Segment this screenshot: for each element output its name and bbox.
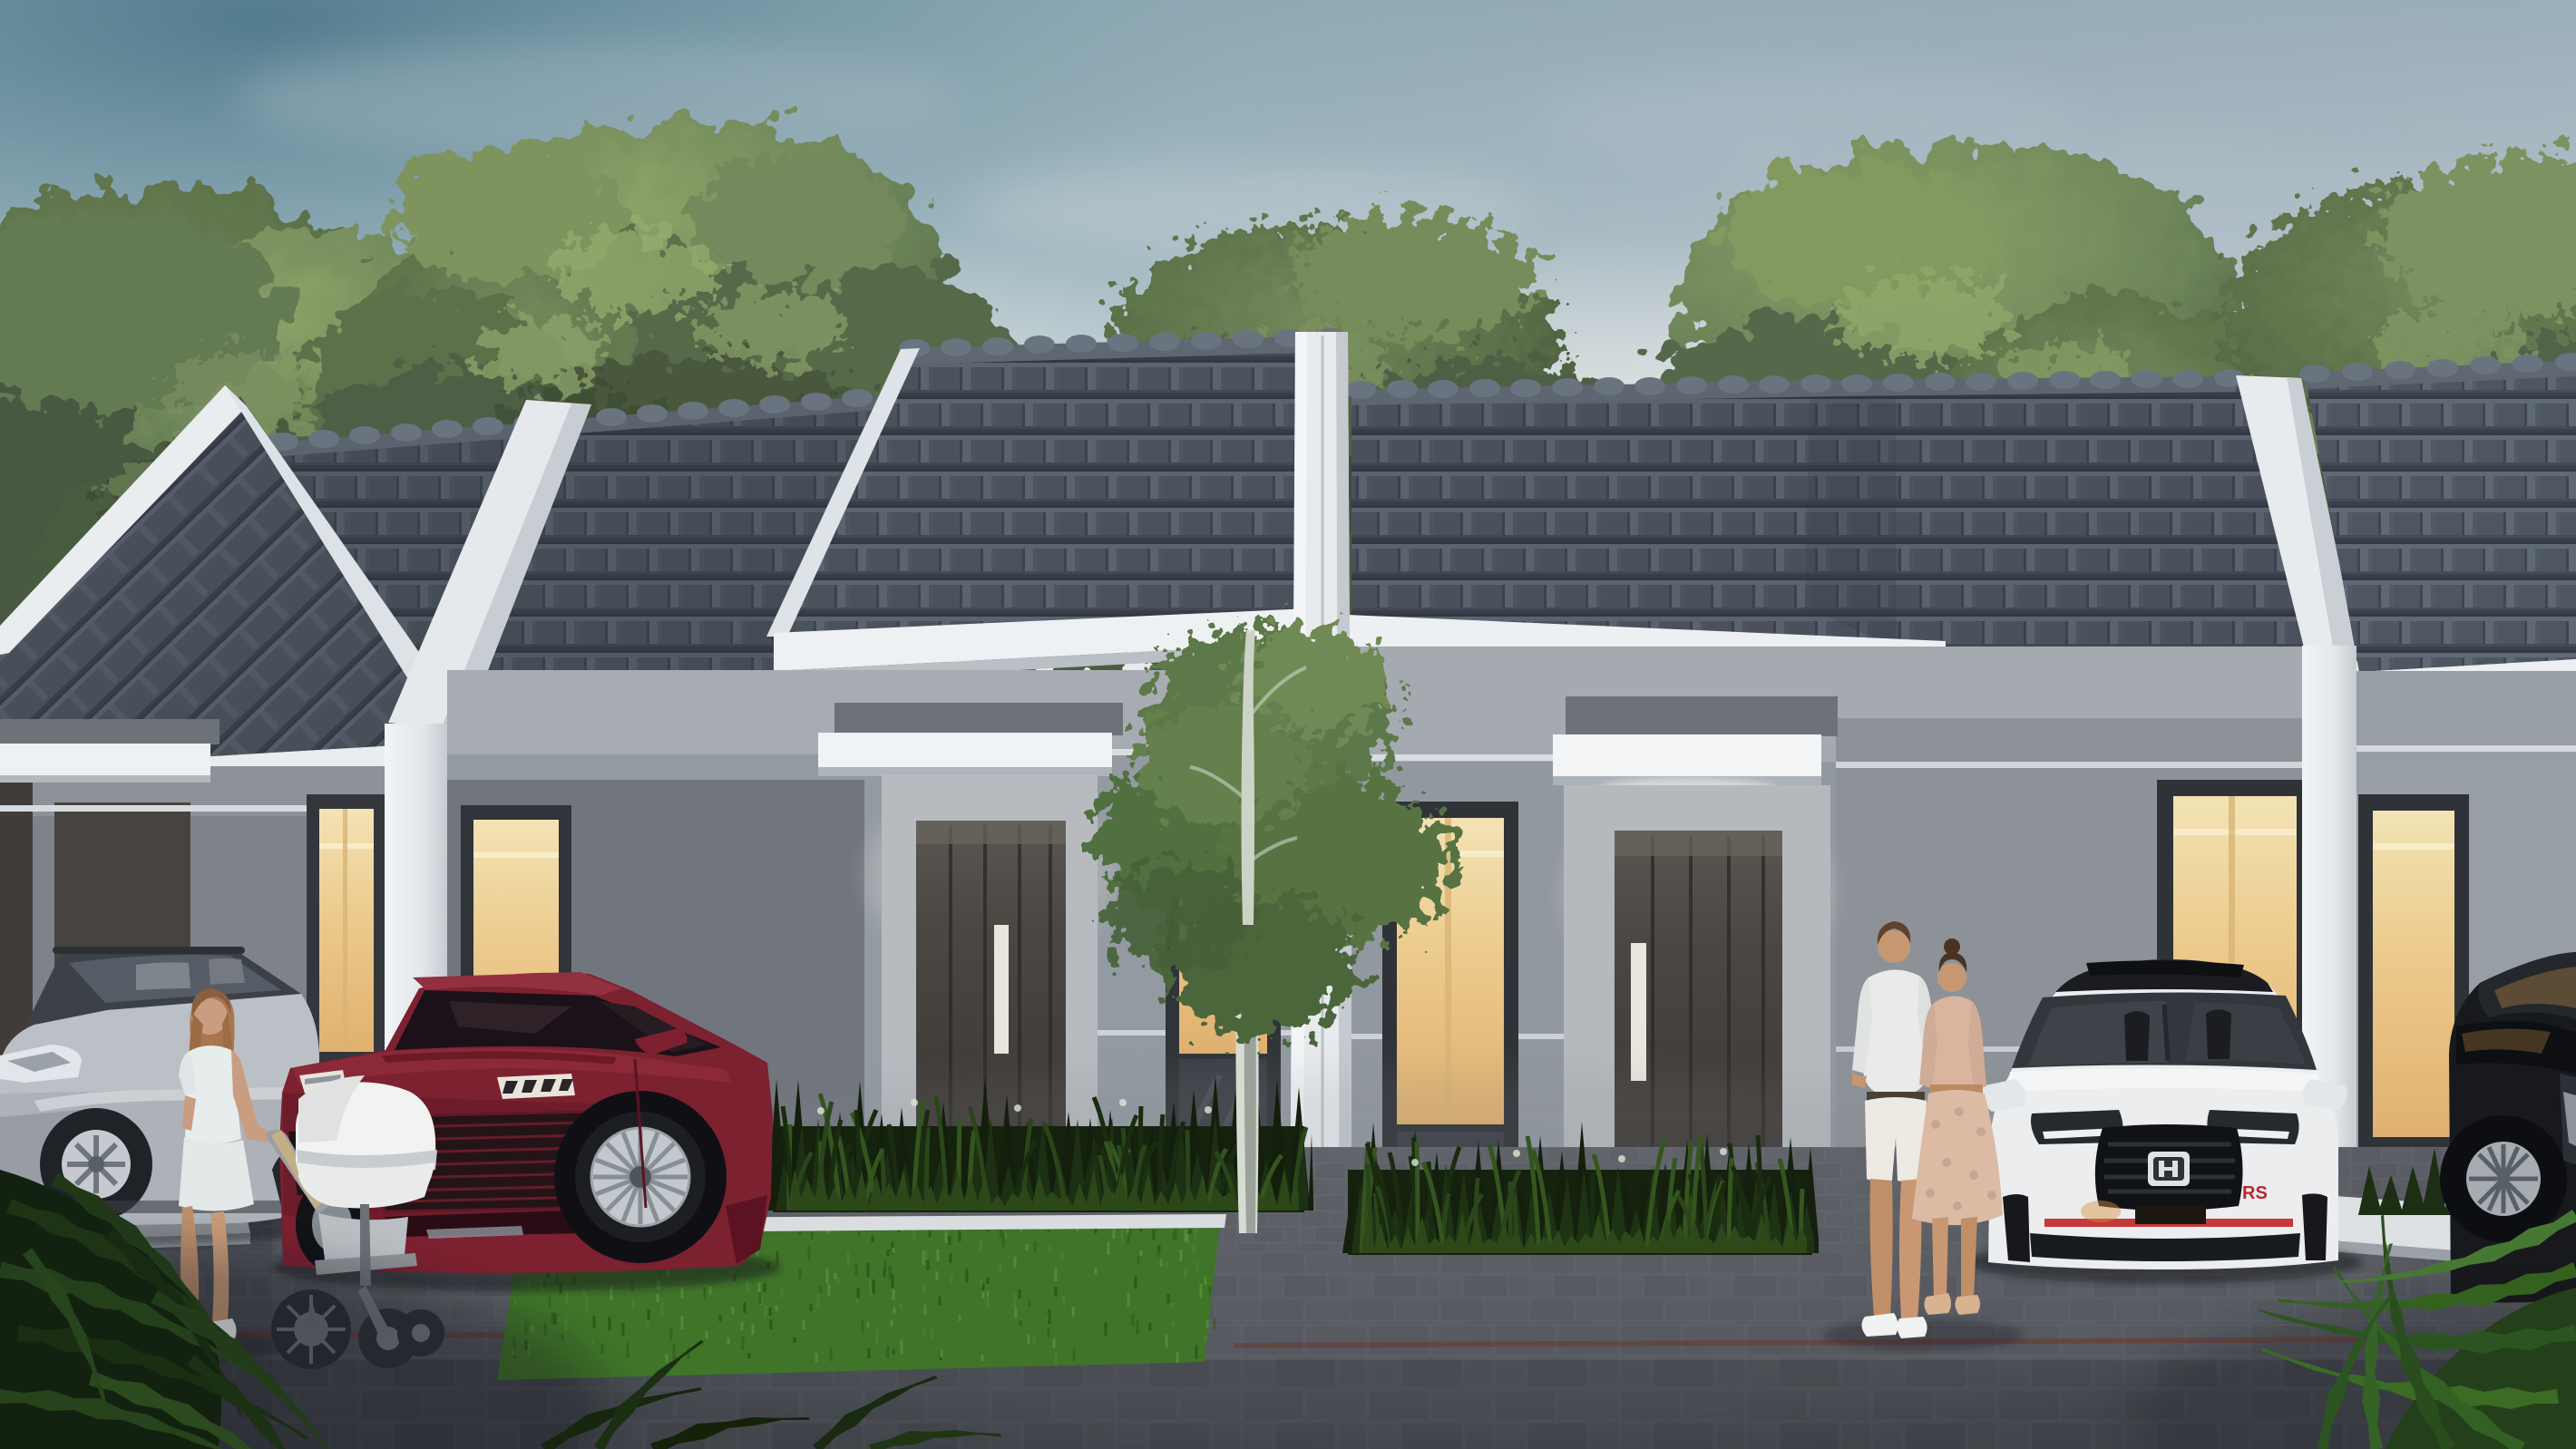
svg-text:RS: RS [2242, 1183, 2268, 1203]
